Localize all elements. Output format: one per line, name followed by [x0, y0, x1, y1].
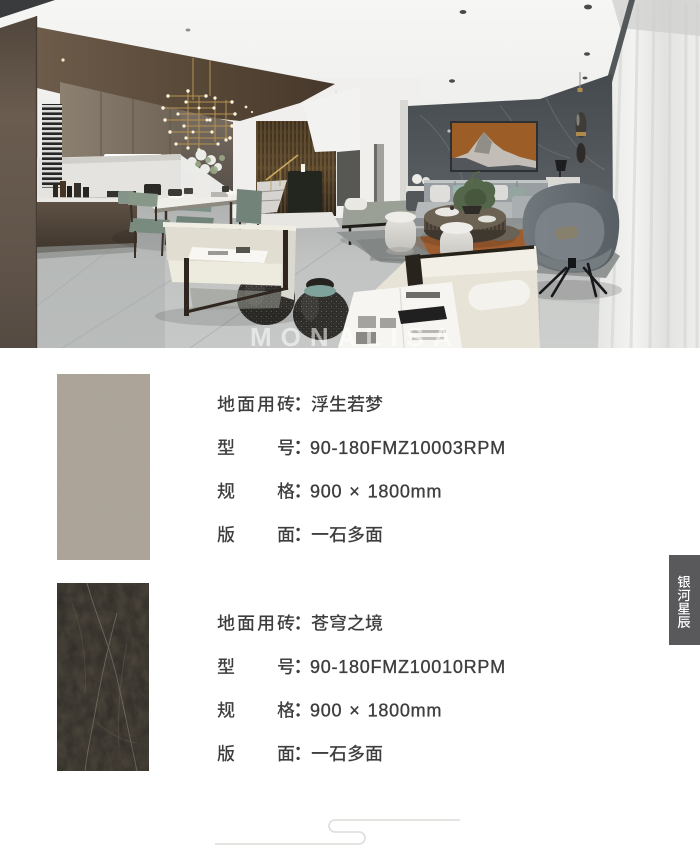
svg-text:90-180FMZ10010RPM: 90-180FMZ10010RPM	[310, 657, 506, 677]
svg-text:900×1800mm: 900×1800mm	[310, 482, 442, 502]
svg-text:900×1800mm: 900×1800mm	[310, 701, 442, 721]
svg-text:90-180FMZ10003RPM: 90-180FMZ10003RPM	[310, 438, 506, 458]
